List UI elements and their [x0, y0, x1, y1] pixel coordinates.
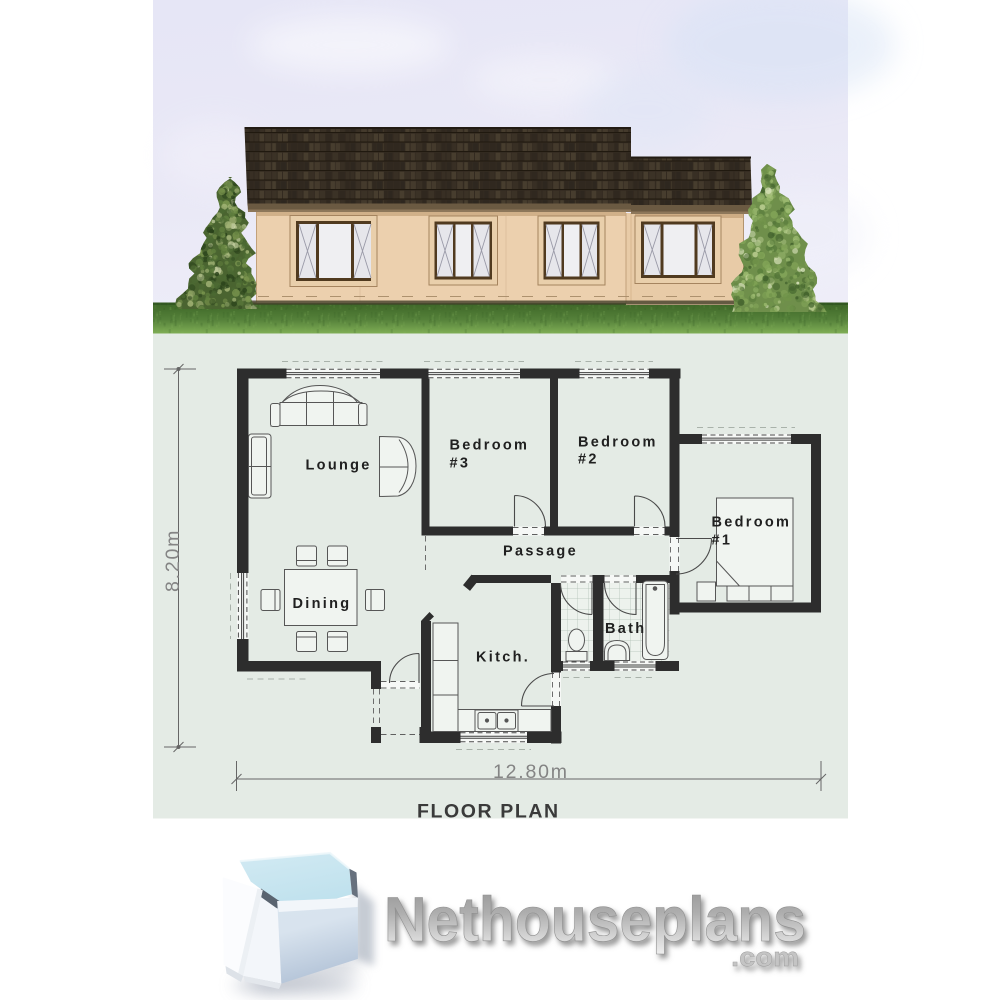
svg-text:Bedroom: Bedroom [450, 438, 530, 454]
svg-text:Bedroom: Bedroom [578, 434, 658, 450]
svg-text:.com: .com [731, 942, 799, 972]
svg-text:#2: #2 [578, 452, 599, 468]
svg-text:8.20m: 8.20m [162, 529, 184, 592]
svg-text:#1: #1 [712, 533, 733, 549]
svg-text:Passage: Passage [503, 544, 578, 560]
svg-text:Bedroom: Bedroom [712, 515, 792, 531]
svg-text:12.80m: 12.80m [493, 761, 569, 783]
svg-text:Bath: Bath [605, 621, 646, 637]
svg-text:FLOOR PLAN: FLOOR PLAN [417, 801, 560, 823]
svg-text:Kitch.: Kitch. [476, 650, 530, 666]
svg-text:Lounge: Lounge [306, 458, 372, 474]
svg-text:#3: #3 [450, 456, 471, 472]
svg-text:Dining: Dining [293, 596, 352, 612]
